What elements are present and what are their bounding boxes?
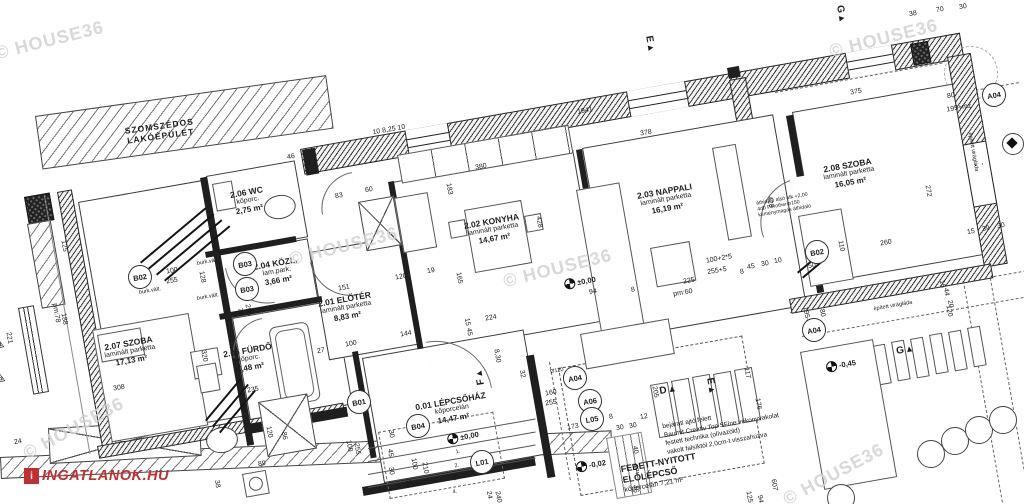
dimension-label: 15	[463, 318, 471, 327]
section-marker-G: G▲	[834, 4, 848, 23]
dimension-label: 32	[518, 370, 526, 379]
house36-watermark: © HOUSE36	[0, 17, 106, 64]
left-window	[18, 305, 49, 394]
dimension-label: 46	[287, 153, 296, 161]
dimension-label: 47	[631, 464, 639, 473]
dimension-label: 83	[335, 192, 344, 200]
garden-step	[929, 333, 949, 375]
dimension-label: 8	[739, 268, 744, 276]
dimension-label: 44	[942, 288, 950, 297]
corner-block	[910, 41, 932, 66]
dimension-label: 188	[60, 313, 69, 326]
dimension-label: 30	[387, 467, 395, 476]
dimension-label: 8	[608, 413, 613, 421]
dimension-label: 80	[818, 309, 826, 318]
dimension-label: 70	[936, 6, 945, 14]
shower	[258, 393, 317, 457]
annotation-label: épített virágláda	[873, 300, 913, 313]
garden-step	[910, 337, 930, 379]
dimension-label: 10	[774, 257, 783, 265]
dimension-label: 75	[236, 308, 244, 317]
dimension-label: 30	[629, 422, 638, 430]
dimension-label: 38	[213, 480, 221, 489]
dimension-label: 12	[640, 413, 649, 421]
garden-step	[967, 326, 987, 368]
stair-step-number: 4.	[452, 489, 458, 496]
dimension-label: 607	[770, 479, 779, 492]
dimension-label: 80	[947, 92, 956, 100]
level-symbol	[825, 360, 838, 373]
agency-logo: i INGATLANOK.HU	[24, 468, 169, 484]
dimension-label: 38	[909, 10, 918, 18]
dimension-label: 375	[850, 88, 863, 97]
dimension-label: 30	[761, 260, 770, 268]
section-marker-G: G▲	[895, 343, 914, 357]
stair-step-number: 3.	[453, 476, 459, 483]
stair-step-number: 2.	[454, 463, 460, 470]
left-edge-hatch	[27, 220, 66, 309]
dimension-label: 39	[982, 225, 991, 233]
triangle-marker: △2	[0, 371, 9, 385]
level-symbol	[575, 460, 588, 473]
dimension-label: 40	[631, 446, 639, 455]
dimension-label: 45	[747, 263, 756, 271]
dimension-label: 45	[386, 449, 394, 458]
agency-logo-text: INGATLANOK.HU	[42, 468, 169, 484]
dimension-label: 10	[404, 479, 412, 488]
level-symbol	[563, 277, 576, 290]
stepping-stone	[989, 406, 1017, 434]
bathtub-inner	[274, 327, 316, 401]
dimension-label: 19	[427, 267, 436, 275]
boundary-line	[962, 276, 1005, 504]
dimension-label: 89	[258, 460, 267, 468]
dimension-label: 30	[997, 222, 1006, 230]
garden-step	[948, 330, 968, 372]
dimension-label: 255	[545, 399, 558, 408]
room-label-2.06: 2.06 WCkőporc.2,75 m²	[229, 184, 266, 217]
dimension-label: 8	[630, 286, 635, 294]
dimension-label: 94	[756, 495, 764, 504]
agency-logo-icon: i	[24, 468, 39, 484]
section-marker-E: E▲	[643, 35, 657, 53]
dimension-label: 60	[365, 186, 374, 194]
washing-machine	[242, 470, 270, 498]
dimension-label: 30	[387, 430, 395, 439]
dimension-label: 30	[616, 424, 625, 432]
chimney-block	[727, 66, 741, 79]
dimension-label: 24	[485, 491, 493, 500]
washing-machine-drum	[248, 476, 264, 492]
dimension-label: 46	[631, 485, 639, 494]
stair-step-number: 1.	[455, 449, 461, 456]
dimension-label: 20	[946, 300, 954, 309]
floor-plan-canvas: SZOMSZÉDOS LAKÓÉPÜLET	[0, 0, 1024, 504]
dimension-label: 15	[967, 228, 976, 236]
dimension-label: 45	[465, 328, 473, 337]
dimension-label: 240	[494, 491, 503, 504]
dimension-label: 125	[745, 491, 754, 504]
dimension-label: 27	[317, 347, 326, 355]
level-symbol	[446, 432, 459, 445]
dimension-label: 30	[959, 3, 968, 11]
window-opening	[626, 81, 690, 117]
boundary-line	[988, 268, 1024, 504]
dimension-label: 86	[280, 432, 288, 441]
dimension-label: 94	[589, 288, 598, 296]
